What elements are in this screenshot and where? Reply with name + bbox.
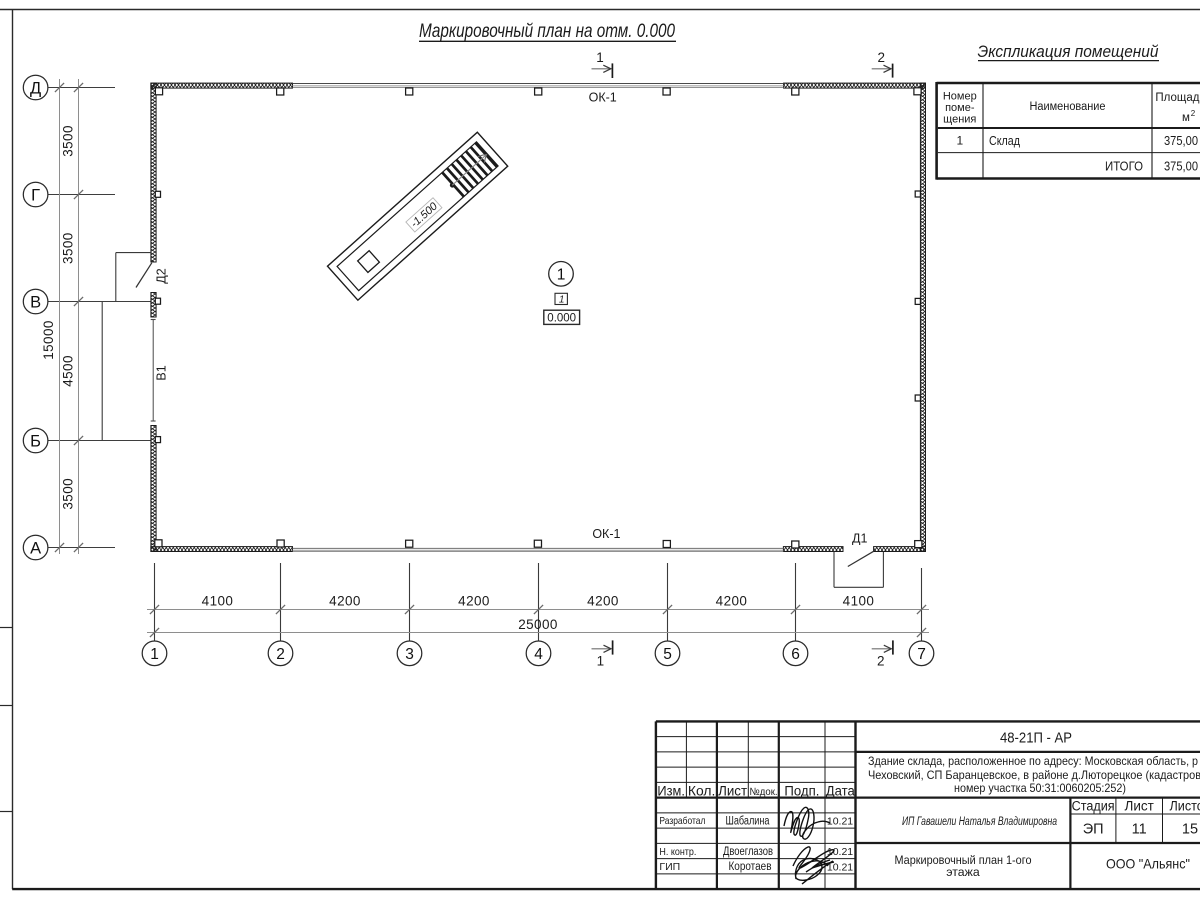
svg-text:1: 1 (557, 266, 566, 283)
svg-text:6: 6 (791, 646, 800, 663)
svg-text:поме-: поме- (945, 102, 975, 114)
svg-text:ИП Гавашели Наталья Владимиров: ИП Гавашели Наталья Владимировна (902, 814, 1057, 828)
svg-text:0.000: 0.000 (547, 312, 576, 324)
svg-text:ООО "Альянс": ООО "Альянс" (1106, 855, 1190, 871)
svg-text:Кол.: Кол. (688, 783, 716, 798)
svg-text:2: 2 (877, 50, 885, 65)
svg-text:4200: 4200 (716, 594, 748, 609)
svg-text:Чеховский, СП Баранцевское, в: Чеховский, СП Баранцевское, в районе д.Л… (868, 768, 1200, 782)
svg-text:10.21: 10.21 (827, 862, 853, 874)
svg-text:Площадь,: Площадь, (1155, 92, 1200, 104)
svg-text:375,00: 375,00 (1164, 160, 1198, 174)
svg-text:В: В (30, 293, 41, 311)
svg-text:Экспликация помещений: Экспликация помещений (978, 42, 1159, 61)
svg-text:ЭП: ЭП (1083, 822, 1104, 838)
svg-text:4100: 4100 (202, 594, 234, 609)
svg-text:10.21: 10.21 (827, 816, 853, 828)
svg-text:Разработал: Разработал (659, 815, 705, 827)
svg-text:Подп.: Подп. (784, 783, 819, 798)
svg-text:Д: Д (30, 79, 41, 97)
svg-text:ГИП: ГИП (659, 861, 680, 873)
svg-text:Склад: Склад (989, 134, 1021, 148)
svg-text:этажа: этажа (946, 865, 980, 879)
svg-text:2: 2 (1191, 109, 1196, 118)
svg-text:Здание склада, расположенное п: Здание склада, расположенное по адресу: … (868, 754, 1198, 768)
svg-text:7: 7 (917, 646, 926, 663)
svg-text:Изм.: Изм. (657, 783, 685, 798)
svg-text:10.21: 10.21 (827, 846, 853, 858)
svg-text:1: 1 (597, 654, 605, 669)
svg-text:Стадия: Стадия (1072, 798, 1115, 813)
svg-text:4200: 4200 (587, 594, 619, 609)
svg-text:5: 5 (663, 646, 672, 663)
svg-text:Коротаев: Коротаев (729, 861, 772, 873)
svg-text:375,00: 375,00 (1164, 134, 1198, 148)
svg-text:4500: 4500 (61, 355, 76, 387)
svg-text:ОК-1: ОК-1 (592, 527, 620, 541)
svg-text:1: 1 (559, 294, 565, 305)
svg-text:15000: 15000 (41, 320, 56, 360)
svg-text:4200: 4200 (458, 594, 490, 609)
svg-text:Лист: Лист (718, 783, 747, 798)
svg-text:Номер: Номер (943, 91, 977, 103)
svg-text:25000: 25000 (518, 617, 558, 632)
svg-text:щения: щения (943, 114, 976, 126)
svg-text:А: А (30, 539, 41, 557)
svg-text:2: 2 (276, 646, 285, 663)
svg-text:4100: 4100 (843, 594, 875, 609)
svg-text:Г: Г (31, 186, 40, 204)
svg-text:11: 11 (1132, 822, 1147, 838)
svg-text:2: 2 (877, 654, 885, 669)
svg-text:1: 1 (596, 50, 604, 65)
svg-text:Маркировочный план на отм. 0.0: Маркировочный план на отм. 0.000 (419, 20, 675, 42)
svg-text:4: 4 (534, 646, 543, 663)
svg-text:№док.: №док. (750, 786, 778, 798)
svg-text:Н. контр.: Н. контр. (659, 846, 696, 858)
svg-text:3500: 3500 (61, 125, 76, 157)
svg-text:Наименование: Наименование (1030, 101, 1106, 113)
svg-text:Листов: Листов (1170, 798, 1200, 813)
svg-text:Д2: Д2 (155, 268, 169, 283)
svg-text:Дата: Дата (826, 783, 855, 798)
svg-text:ОК-1: ОК-1 (589, 91, 617, 105)
svg-text:Лист: Лист (1125, 798, 1154, 813)
svg-text:3500: 3500 (61, 232, 76, 264)
svg-text:В1: В1 (155, 365, 169, 380)
svg-text:ИТОГО: ИТОГО (1105, 160, 1143, 174)
svg-text:3500: 3500 (61, 478, 76, 510)
svg-text:1: 1 (150, 646, 159, 663)
svg-text:Двоеглазов: Двоеглазов (723, 846, 773, 858)
svg-text:номер участка 50:31:0060205:25: номер участка 50:31:0060205:252) (954, 781, 1126, 795)
svg-text:м: м (1182, 112, 1190, 124)
svg-text:15: 15 (1182, 822, 1198, 838)
svg-text:Д1: Д1 (852, 531, 867, 545)
svg-text:48-21П - АР: 48-21П - АР (1000, 730, 1072, 747)
svg-text:Б: Б (30, 432, 41, 450)
svg-text:4200: 4200 (329, 594, 361, 609)
svg-text:Шабалина: Шабалина (726, 816, 770, 828)
svg-text:3: 3 (405, 646, 414, 663)
svg-text:1: 1 (956, 134, 963, 148)
